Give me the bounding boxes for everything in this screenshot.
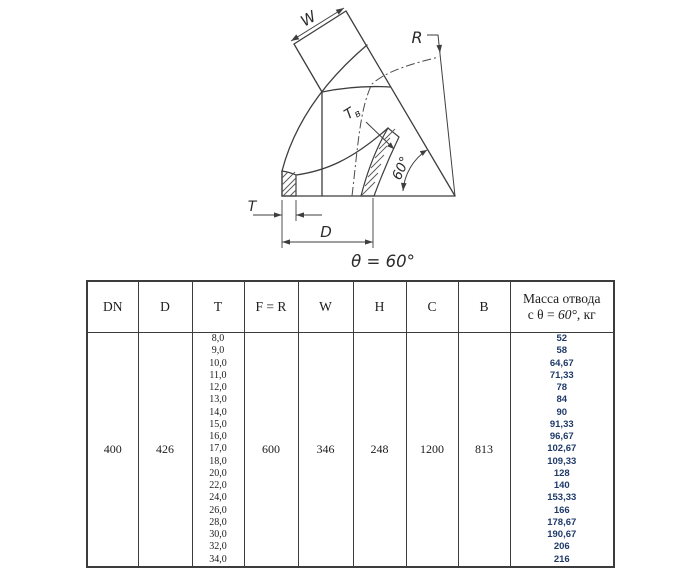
col-header-f-r: F = R (244, 281, 298, 333)
arrowhead (436, 45, 442, 53)
d-dimension-label: D (320, 223, 332, 241)
t-value: 34,0 (193, 554, 244, 566)
arrowhead (365, 239, 373, 244)
mass-values-list: 525864,6771,3378849091,3396,67102,67109,… (511, 333, 614, 566)
dimension-t: T (248, 199, 322, 248)
inner-arc (296, 128, 388, 175)
t-value: 24,0 (193, 492, 244, 504)
cell-c: 1200 (406, 333, 458, 567)
cell-t-values: 8,09,010,011,012,013,014,015,016,017,018… (192, 333, 244, 567)
mass-value: 91,33 (511, 419, 614, 431)
right-wall-section (361, 128, 399, 196)
t-value: 12,0 (193, 382, 244, 394)
mass-value: 58 (511, 345, 614, 357)
col-header-d: D (138, 281, 192, 333)
t-value: 26,0 (193, 505, 244, 517)
table-header-row: DN D T F = R W H C B Масса отвода с θ = … (87, 281, 614, 333)
mass-value: 78 (511, 382, 614, 394)
t-value: 32,0 (193, 541, 244, 553)
t-value: 13,0 (193, 394, 244, 406)
angle-value-label: 60° (389, 154, 413, 182)
mass-value: 140 (511, 480, 614, 492)
w-dimension-label: W (297, 7, 320, 31)
left-hatch-lines (282, 172, 296, 196)
cell-d: 426 (138, 333, 192, 567)
mass-value: 190,67 (511, 529, 614, 541)
t-value: 30,0 (193, 529, 244, 541)
mass-header-suffix: , кг (577, 307, 596, 322)
mass-value: 102,67 (511, 443, 614, 455)
mass-value: 64,67 (511, 358, 614, 370)
t-value: 28,0 (193, 517, 244, 529)
mass-value: 71,33 (511, 370, 614, 382)
outer-arc (282, 45, 367, 171)
col-header-h: H (353, 281, 406, 333)
mass-value: 109,33 (511, 456, 614, 468)
t-value: 15,0 (193, 419, 244, 431)
theta-angle-note: θ = 60° (351, 252, 415, 271)
tv-dimension-label: Tв (342, 102, 364, 125)
mass-value: 84 (511, 394, 614, 406)
elbow-section-diagram: W R Tв 60° T (0, 0, 700, 276)
t-value: 10,0 (193, 358, 244, 370)
angle-arc-60: 60° (389, 150, 427, 191)
dimension-r: R (411, 28, 455, 196)
t-value: 16,0 (193, 431, 244, 443)
left-wall-line (294, 44, 322, 92)
mass-header-angle: 60° (558, 307, 577, 322)
cell-mass-values: 525864,6771,3378849091,3396,67102,67109,… (510, 333, 614, 567)
arrowhead (274, 212, 282, 217)
dimensions-table: DN D T F = R W H C B Масса отвода с θ = … (86, 280, 615, 568)
t-value: 20,0 (193, 468, 244, 480)
mass-value: 166 (511, 505, 614, 517)
mass-value: 52 (511, 333, 614, 345)
t-value: 18,0 (193, 456, 244, 468)
annotation-tv: Tв (342, 102, 394, 149)
cell-dn: 400 (87, 333, 138, 567)
mass-value: 90 (511, 407, 614, 419)
page: W R Tв 60° T (0, 0, 700, 573)
col-header-b: B (458, 281, 510, 333)
t-value: 9,0 (193, 345, 244, 357)
mass-value: 178,67 (511, 517, 614, 529)
cell-w: 346 (298, 333, 353, 567)
t-values-list: 8,09,010,011,012,013,014,015,016,017,018… (193, 333, 244, 566)
t-value: 22,0 (193, 480, 244, 492)
elbow-outline (282, 11, 455, 196)
t-value: 17,0 (193, 443, 244, 455)
col-header-c: C (406, 281, 458, 333)
mass-value: 96,67 (511, 431, 614, 443)
mass-header-line1: Масса отвода (523, 291, 601, 306)
col-header-w: W (298, 281, 353, 333)
r-dimension-label: R (411, 28, 422, 47)
col-header-mass: Масса отвода с θ = 60°, кг (510, 281, 614, 333)
table-data-row: 400 426 8,09,010,011,012,013,014,015,016… (87, 333, 614, 567)
mass-value: 216 (511, 554, 614, 566)
cell-f-r: 600 (244, 333, 298, 567)
col-header-t: T (192, 281, 244, 333)
t-value: 8,0 (193, 333, 244, 345)
arrowhead (291, 34, 299, 41)
t-value: 14,0 (193, 407, 244, 419)
mass-value: 128 (511, 468, 614, 480)
left-wall-section (282, 171, 296, 196)
dimension-w: W (291, 7, 344, 41)
arrowhead (401, 183, 407, 191)
cell-b: 813 (458, 333, 510, 567)
t-value: 11,0 (193, 370, 244, 382)
mass-header-prefix: с θ = (528, 307, 558, 322)
cell-h: 248 (353, 333, 406, 567)
t-dimension-label: T (248, 199, 258, 215)
arrowhead (282, 239, 290, 244)
mass-value: 206 (511, 541, 614, 553)
mass-value: 153,33 (511, 492, 614, 504)
arrowhead (296, 212, 304, 217)
col-header-dn: DN (87, 281, 138, 333)
seam-line (322, 87, 390, 92)
